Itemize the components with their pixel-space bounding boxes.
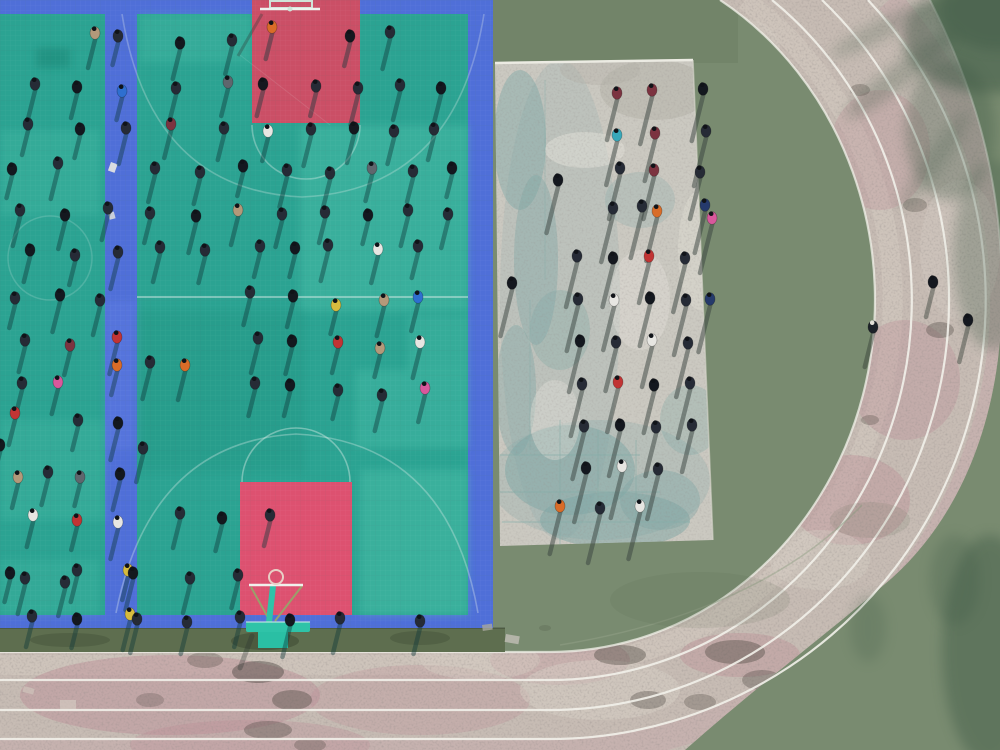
person-head [77, 470, 82, 475]
person-head [655, 462, 660, 467]
person-head [202, 243, 207, 248]
person-head [579, 377, 584, 382]
person-head [29, 609, 34, 614]
ground-litter [60, 700, 76, 709]
person-head [557, 499, 562, 504]
person-head [683, 293, 688, 298]
person-head [377, 341, 382, 346]
person-head [75, 413, 80, 418]
person-head [347, 29, 352, 34]
person-head [184, 615, 189, 620]
person-head [74, 80, 79, 85]
person-head [119, 84, 124, 89]
person-head [687, 376, 692, 381]
person-head [125, 563, 130, 568]
person-head [115, 515, 120, 520]
person-head [308, 122, 313, 127]
person-head [57, 288, 62, 293]
person-head [322, 205, 327, 210]
person-head [327, 166, 332, 171]
person-head [173, 81, 178, 86]
person-head [292, 241, 297, 246]
person-head [654, 204, 659, 209]
person-head [240, 159, 245, 164]
person-head [92, 26, 97, 31]
person-head [12, 406, 17, 411]
person-head [387, 25, 392, 30]
person-head [555, 173, 560, 178]
person-head [597, 501, 602, 506]
person-head [117, 467, 122, 472]
person-head [697, 165, 702, 170]
person-head [581, 419, 586, 424]
person-head [22, 571, 27, 576]
person-head [177, 36, 182, 41]
person-head [379, 388, 384, 393]
person-head [193, 209, 198, 214]
person-head [651, 378, 656, 383]
person-head [229, 33, 234, 38]
person-head [415, 290, 420, 295]
person-head [115, 29, 120, 34]
person-head [614, 128, 619, 133]
person-head [709, 211, 714, 216]
person-head [147, 355, 152, 360]
person-head [45, 465, 50, 470]
person-head [639, 199, 644, 204]
person-head [577, 334, 582, 339]
person-head [279, 207, 284, 212]
person-head [615, 375, 620, 380]
person-head [237, 610, 242, 615]
person-head [105, 201, 110, 206]
person-head [617, 418, 622, 423]
person-head [267, 508, 272, 513]
person-head [652, 126, 657, 131]
person-head [653, 420, 658, 425]
person-head [269, 20, 274, 25]
person-head [265, 124, 270, 129]
person-head [127, 607, 132, 612]
person-head [114, 330, 119, 335]
person-head [610, 251, 615, 256]
person-head [422, 381, 427, 386]
person-head [647, 291, 652, 296]
person-head [25, 117, 30, 122]
person-head [74, 513, 79, 518]
person-head [707, 292, 712, 297]
person-head [22, 333, 27, 338]
person-head [32, 77, 37, 82]
person-head [325, 238, 330, 243]
person-head [930, 275, 935, 280]
person-head [77, 122, 82, 127]
person-head [965, 313, 970, 318]
person-head [290, 289, 295, 294]
person-head [375, 242, 380, 247]
person-head [651, 163, 656, 168]
dark-grass-strip [493, 0, 738, 63]
aerial-sports-ground-photo [0, 0, 1000, 750]
person-head [134, 612, 139, 617]
person-head [115, 416, 120, 421]
person-head [610, 201, 615, 206]
person-head [72, 248, 77, 253]
person-head [257, 239, 262, 244]
person-head [74, 612, 79, 617]
person-head [67, 338, 72, 343]
person-head [289, 334, 294, 339]
person-head [152, 161, 157, 166]
person-head [381, 293, 386, 298]
person-head [260, 77, 265, 82]
person-head [335, 383, 340, 388]
person-head [369, 161, 374, 166]
person-head [284, 163, 289, 168]
person-head [365, 208, 370, 213]
person-head [187, 571, 192, 576]
person-head [225, 75, 230, 80]
person-head [617, 161, 622, 166]
person-head [97, 293, 102, 298]
person-head [252, 376, 257, 381]
person-head [682, 251, 687, 256]
person-head [55, 156, 60, 161]
person-head [182, 358, 187, 363]
person-head [27, 243, 32, 248]
person-head [438, 81, 443, 86]
person-head [287, 378, 292, 383]
person-head [55, 375, 60, 380]
person-head [417, 335, 422, 340]
person-head [123, 121, 128, 126]
person-head [415, 239, 420, 244]
person-head [351, 121, 356, 126]
person-head [689, 418, 694, 423]
person-head [62, 575, 67, 580]
person-head [703, 124, 708, 129]
person-head [62, 208, 67, 213]
person-head [583, 461, 588, 466]
person-head [12, 291, 17, 296]
person-head [649, 333, 654, 338]
person-head [19, 376, 24, 381]
person-head [235, 568, 240, 573]
person-head [685, 336, 690, 341]
person-head [574, 249, 579, 254]
person-head [140, 441, 145, 446]
person-head [614, 86, 619, 91]
person-head [157, 240, 162, 245]
person-head [30, 508, 35, 513]
person-head [255, 331, 260, 336]
person-head [391, 124, 396, 129]
person-head [575, 292, 580, 297]
person-head [333, 298, 338, 303]
person-head [431, 122, 436, 127]
person-head [197, 165, 202, 170]
person-head [147, 206, 152, 211]
person-head [355, 81, 360, 86]
person-head [449, 161, 454, 166]
person-head [405, 203, 410, 208]
person-head [637, 499, 642, 504]
person-head [611, 293, 616, 298]
person-head [130, 566, 135, 571]
person-head [287, 613, 292, 618]
person-head [168, 117, 173, 122]
person-head [313, 79, 318, 84]
person-head [337, 611, 342, 616]
person-head [177, 506, 182, 511]
person-head [870, 320, 875, 325]
person-head [17, 203, 22, 208]
person-head [700, 82, 705, 87]
person-head [619, 459, 624, 464]
person-head [646, 249, 651, 254]
person-head [235, 203, 240, 208]
person-head [702, 198, 707, 203]
person-head [445, 207, 450, 212]
person-head [114, 358, 119, 363]
person-head [15, 470, 20, 475]
person-head [335, 335, 340, 340]
person-head [247, 285, 252, 290]
person-head [221, 121, 226, 126]
person-head [74, 563, 79, 568]
person-head [397, 78, 402, 83]
person-head [509, 276, 514, 281]
person-head [115, 245, 120, 250]
photo-canvas [0, 0, 1000, 750]
person-head [9, 162, 14, 167]
person-head [410, 164, 415, 169]
person-head [7, 566, 12, 571]
person-head [219, 511, 224, 516]
person-head [417, 614, 422, 619]
person-head [649, 83, 654, 88]
person-head [613, 335, 618, 340]
